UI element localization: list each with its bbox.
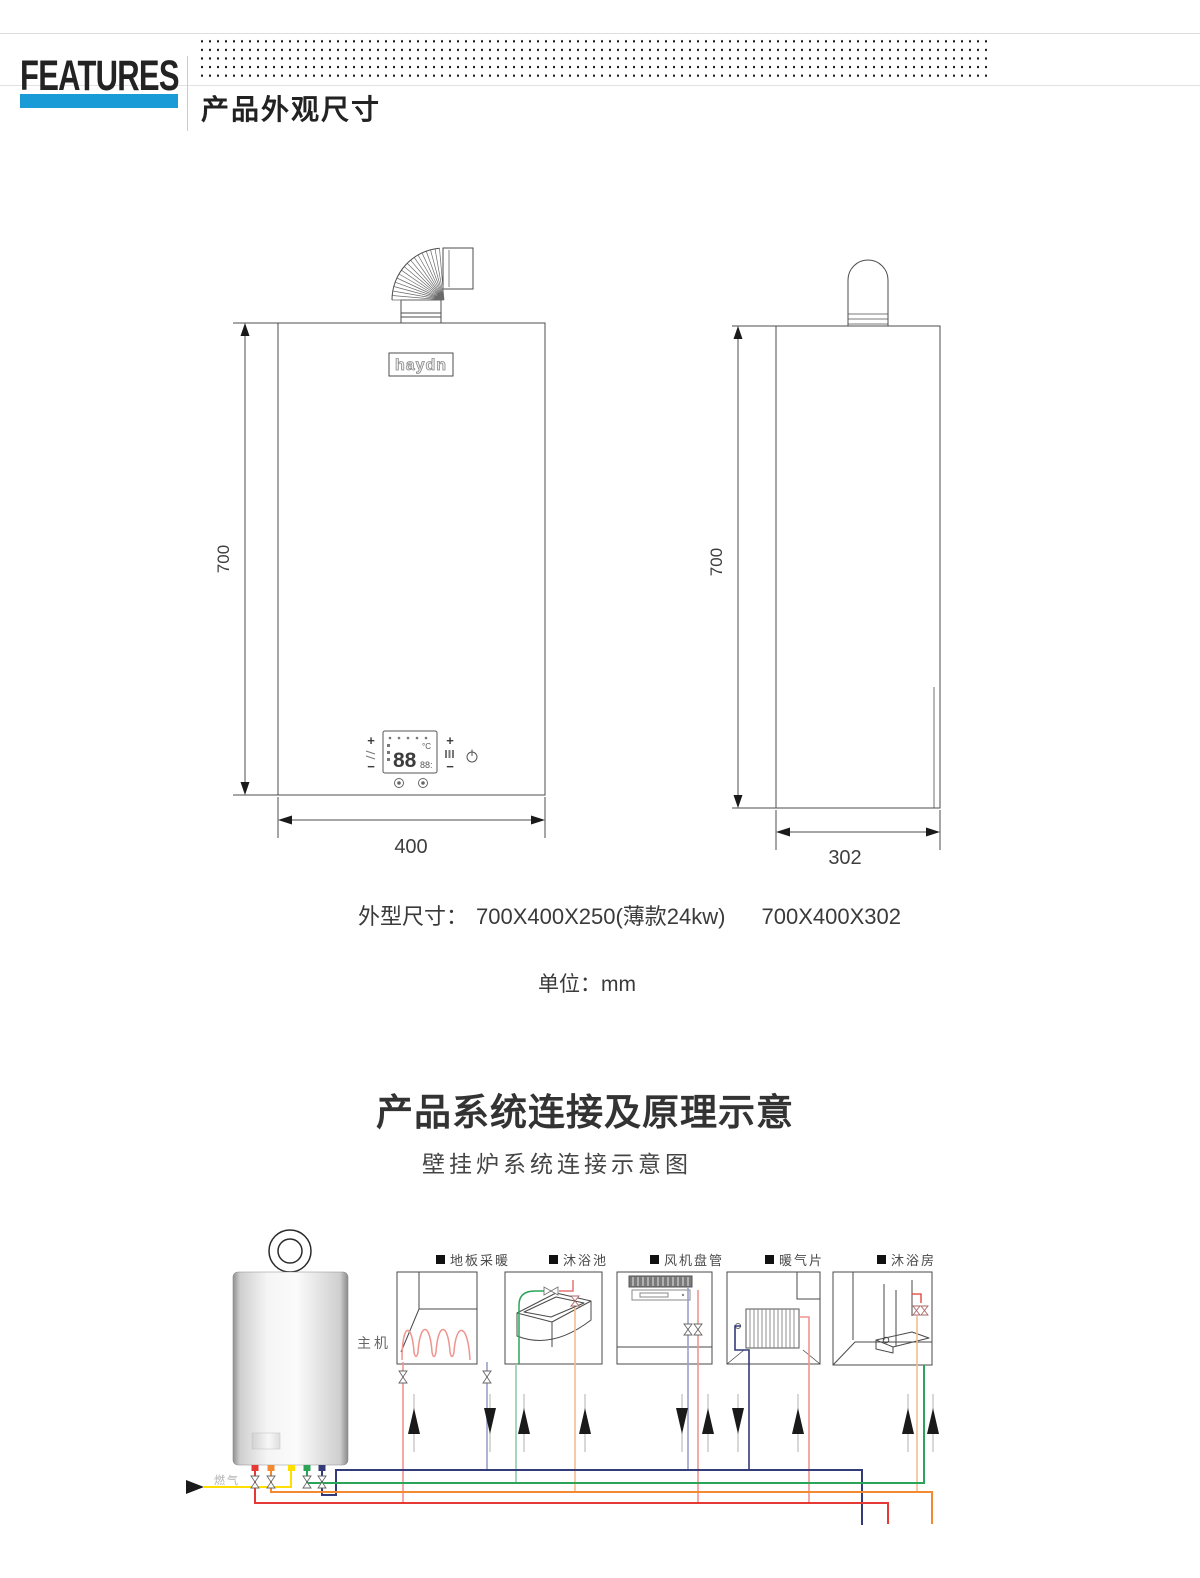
pipe-cold-orange	[271, 1471, 932, 1524]
boiler-front-outline	[278, 323, 545, 795]
boiler-connection-stubs	[252, 1465, 326, 1471]
side-view-drawing: 700 302	[707, 260, 940, 869]
appliance-box-bathtub	[505, 1272, 602, 1364]
system-diagram: 主机	[186, 1230, 939, 1525]
appliance-box-floor-heating	[397, 1272, 477, 1364]
radiator-mode-icon	[445, 750, 454, 758]
haydn-logo-text: haydn	[395, 357, 447, 374]
temperature-display: 88	[393, 749, 417, 772]
display-secondary: 88:	[420, 760, 433, 770]
left-plus-button[interactable]: +	[367, 733, 375, 748]
boiler-illustration	[233, 1230, 348, 1465]
gas-label: 燃气	[214, 1473, 240, 1487]
right-minus-button[interactable]: −	[446, 759, 454, 774]
appliance-label-radiator: 暖气片	[765, 1250, 824, 1269]
boiler-label: 主机	[357, 1335, 391, 1351]
flue-dome-icon	[848, 260, 888, 326]
dimension-700-side: 700	[707, 326, 776, 808]
gas-arrow-icon	[186, 1480, 204, 1494]
system-section-title: 产品系统连接及原理示意	[0, 1082, 1170, 1136]
appliance-boxes	[397, 1272, 932, 1365]
flue-elbow-icon	[392, 248, 473, 323]
right-plus-button[interactable]: +	[446, 733, 454, 748]
pipe-supply-red	[255, 1471, 888, 1524]
side-height-value: 700	[707, 548, 726, 576]
drawings-canvas: haydn 88 °C 88: + − + −	[0, 0, 1200, 1578]
side-width-value: 302	[828, 847, 861, 869]
dimensions-spec: 外型尺寸：700X400X250(薄款24kw)700X400X302	[358, 899, 901, 931]
front-view-drawing: haydn 88 °C 88: + − + −	[214, 248, 545, 858]
appliance-label-bathtub: 沐浴池	[549, 1250, 608, 1269]
dimensions-value-thin: 700X400X250(薄款24kw)	[476, 904, 725, 929]
boiler-side-outline	[776, 326, 940, 808]
front-height-value: 700	[214, 545, 233, 573]
display-unit-label: °C	[422, 742, 431, 751]
appliance-label-floor-heating: 地板采暖	[436, 1250, 510, 1269]
appliance-label-fan-coil: 风机盘管	[650, 1250, 724, 1269]
hanging-loop-icon	[269, 1230, 311, 1272]
left-minus-button[interactable]: −	[367, 759, 375, 774]
dimension-700-front: 700	[214, 323, 278, 795]
boiler-display-window	[252, 1433, 280, 1449]
appliance-label-shower: 沐浴房	[877, 1250, 936, 1269]
dimensions-value-standard: 700X400X302	[762, 904, 901, 929]
system-section-subtitle: 壁挂炉系统连接示意图	[0, 1145, 1114, 1179]
page: FEATURES 产品外观尺寸	[0, 0, 1200, 1578]
unit-note: 单位：mm	[0, 968, 1174, 998]
haydn-logo: haydn	[389, 353, 453, 376]
dimension-400: 400	[278, 797, 545, 858]
dimensions-spec-label: 外型尺寸：	[358, 904, 468, 929]
front-width-value: 400	[394, 836, 427, 858]
dimension-302: 302	[776, 810, 940, 869]
